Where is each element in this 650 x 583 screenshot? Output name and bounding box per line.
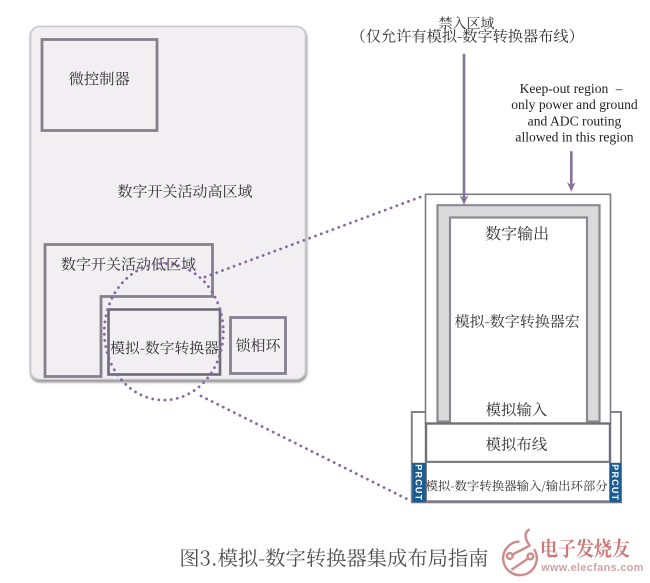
svg-text:only power and ground: only power and ground: [511, 97, 638, 112]
svg-text:allowed in this region: allowed in this region: [515, 130, 633, 145]
svg-text:and ADC routing: and ADC routing: [528, 113, 622, 128]
svg-text:PRCUT: PRCUT: [610, 464, 620, 501]
svg-text:www.elecfans.com: www.elecfans.com: [540, 562, 644, 574]
svg-text:–: –: [615, 81, 623, 96]
svg-text:PRCUT: PRCUT: [414, 464, 424, 501]
svg-text:Keep-out region: Keep-out region: [520, 81, 609, 96]
